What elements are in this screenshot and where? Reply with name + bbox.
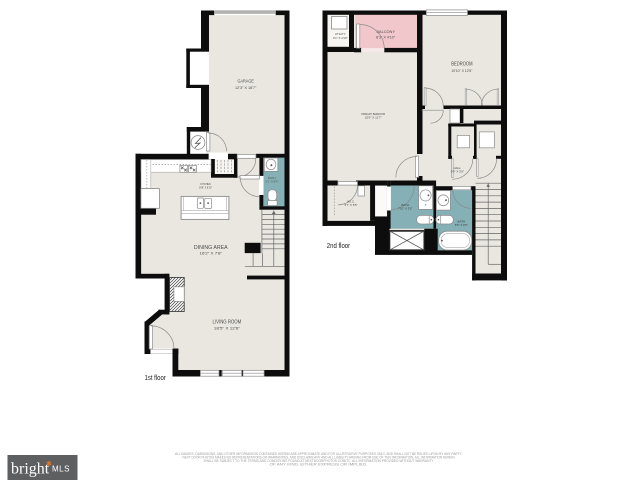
- svg-text:10'10" X 12'5": 10'10" X 12'5": [451, 69, 473, 73]
- svg-text:LIVING ROOM: LIVING ROOM: [213, 320, 242, 326]
- svg-text:16'2" X 7'8": 16'2" X 7'8": [200, 251, 223, 255]
- svg-text:18'5" X 12'6": 18'5" X 12'6": [214, 327, 241, 331]
- svg-text:7'10" X 5'5": 7'10" X 5'5": [398, 207, 413, 211]
- svg-text:DINING AREA: DINING AREA: [194, 245, 228, 251]
- svg-text:16'8" X 8'10": 16'8" X 8'10": [199, 186, 212, 190]
- svg-text:MLS: MLS: [52, 465, 70, 474]
- svg-text:3'1" X 9'6": 3'1" X 9'6": [265, 180, 278, 184]
- svg-text:BEDROOM: BEDROOM: [451, 62, 472, 68]
- svg-text:2nd floor: 2nd floor: [327, 243, 351, 250]
- svg-text:3'1" X 4'10": 3'1" X 4'10": [333, 36, 348, 40]
- svg-text:BALCONY: BALCONY: [376, 29, 395, 34]
- svg-text:GARAGE: GARAGE: [238, 78, 254, 84]
- svg-text:5'5" X 9'5": 5'5" X 9'5": [455, 223, 468, 227]
- svg-text:bright: bright: [11, 461, 50, 478]
- svg-text:15'6" X 11'7": 15'6" X 11'7": [365, 115, 382, 119]
- svg-text:5'7" X 5'5": 5'7" X 5'5": [344, 203, 357, 207]
- svg-text:12'3" X 18'7": 12'3" X 18'7": [235, 86, 257, 90]
- svg-text:1st floor: 1st floor: [145, 375, 167, 382]
- svg-text:9'9" X 3'9": 9'9" X 3'9": [451, 170, 464, 174]
- svg-text:8'3" X 4'10": 8'3" X 4'10": [376, 36, 396, 40]
- svg-text:OF ANY KIND, EITHER EXPRESS OR: OF ANY KIND, EITHER EXPRESS OR IMPLIED.: [270, 463, 368, 467]
